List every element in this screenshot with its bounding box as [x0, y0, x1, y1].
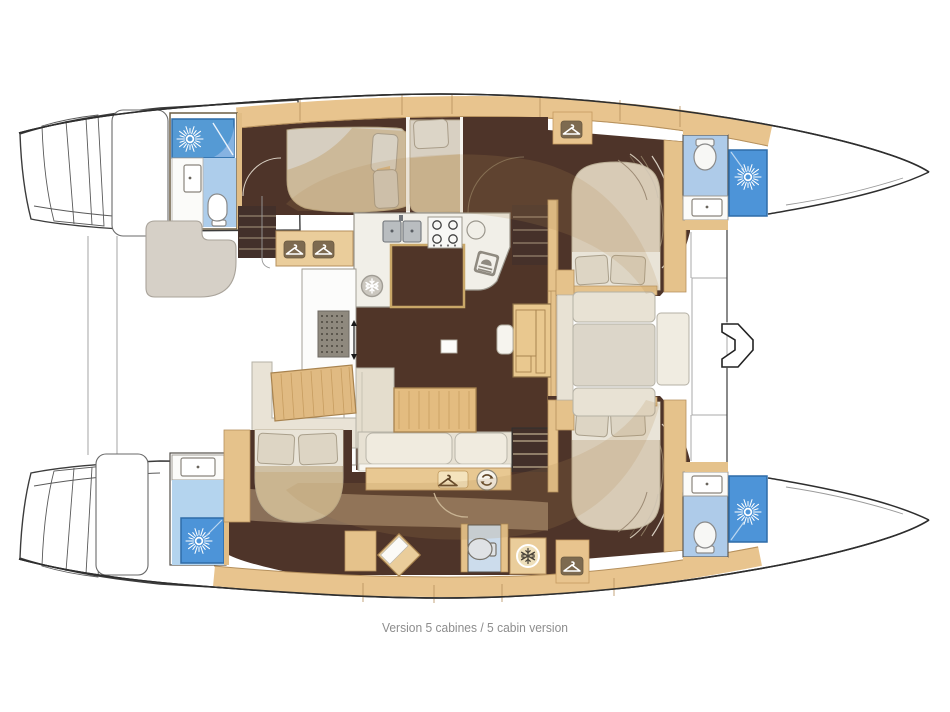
svg-text:Version 5 cabines / 5 cabin ve: Version 5 cabines / 5 cabin version	[382, 620, 568, 635]
